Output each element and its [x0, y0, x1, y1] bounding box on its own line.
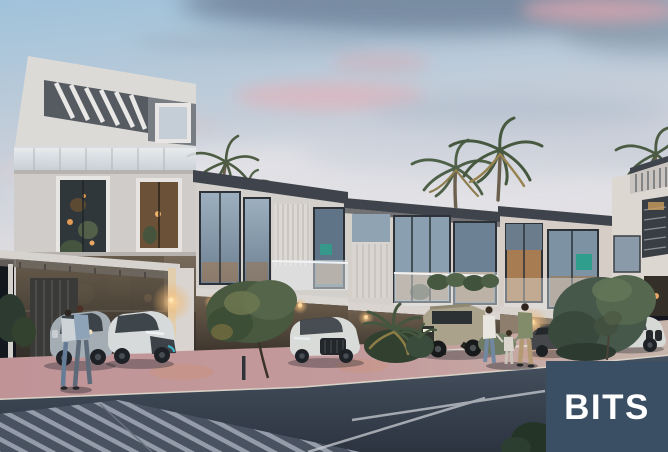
tower-glass-railing [14, 146, 196, 172]
sidewalk-bollard [242, 356, 246, 380]
tower-window-right [136, 178, 182, 252]
louver-panel [274, 204, 310, 266]
right-louver-window [642, 196, 668, 258]
car-white-crossover [106, 311, 176, 369]
car-white-audi-suv [288, 317, 364, 368]
bits-watermark-text: BITS [564, 388, 650, 427]
property-render-image: BITS [0, 0, 668, 452]
louver-panel-b [352, 214, 390, 298]
bits-watermark: BITS [546, 361, 668, 452]
townhouse-unit-b [344, 198, 500, 320]
